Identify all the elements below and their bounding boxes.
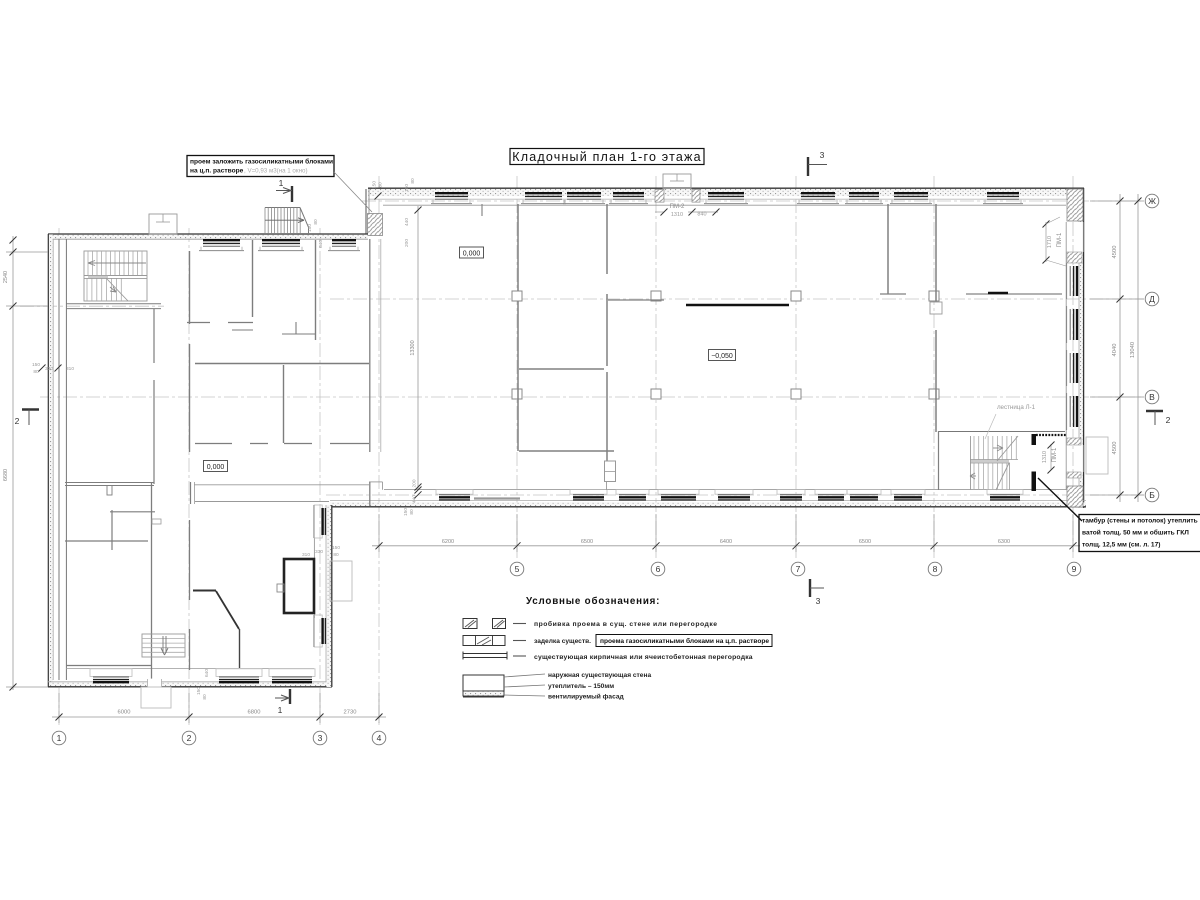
svg-text:6500: 6500 xyxy=(581,539,593,545)
svg-text:1310: 1310 xyxy=(1042,451,1048,463)
svg-text:3: 3 xyxy=(820,150,825,160)
svg-text:150: 150 xyxy=(404,184,410,192)
svg-text:80: 80 xyxy=(202,694,208,700)
svg-text:наружная существующая стена: наружная существующая стена xyxy=(548,672,651,679)
svg-text:2540: 2540 xyxy=(3,271,9,283)
svg-text:Ж: Ж xyxy=(1148,196,1156,206)
svg-text:Кладочный план 1-го этажа: Кладочный план 1-го этажа xyxy=(512,150,702,164)
svg-text:440: 440 xyxy=(404,218,410,226)
svg-text:2730: 2730 xyxy=(344,710,357,716)
svg-text:2: 2 xyxy=(1166,415,1171,425)
svg-text:0,000: 0,000 xyxy=(463,251,481,258)
svg-text:5: 5 xyxy=(515,564,520,574)
svg-text:2: 2 xyxy=(187,733,192,743)
svg-text:1: 1 xyxy=(279,178,284,188)
svg-text:4500: 4500 xyxy=(1112,442,1118,455)
svg-text:Б: Б xyxy=(1149,490,1155,500)
svg-text:6200: 6200 xyxy=(442,539,454,545)
svg-text:330: 330 xyxy=(45,366,53,372)
svg-text:тамбур (стены и потолок) утепл: тамбур (стены и потолок) утеплить xyxy=(1082,517,1198,525)
svg-text:200: 200 xyxy=(404,239,410,247)
svg-text:80: 80 xyxy=(410,178,416,184)
svg-text:4500: 4500 xyxy=(1112,246,1118,259)
svg-text:Д: Д xyxy=(1149,294,1155,304)
svg-text:6680: 6680 xyxy=(3,469,9,481)
svg-text:6800: 6800 xyxy=(248,710,261,716)
svg-text:310: 310 xyxy=(302,552,310,558)
svg-text:на ц.п. растворе: на ц.п. растворе xyxy=(190,168,244,175)
svg-text:150: 150 xyxy=(307,224,313,232)
svg-text:310: 310 xyxy=(66,366,74,372)
svg-text:6: 6 xyxy=(656,564,661,574)
svg-text:ПМ-2: ПМ-2 xyxy=(670,204,685,210)
svg-text:80: 80 xyxy=(378,182,384,188)
svg-text:150: 150 xyxy=(332,545,340,551)
svg-text:2: 2 xyxy=(15,416,20,426)
svg-text:1: 1 xyxy=(278,705,283,715)
svg-text:В: В xyxy=(1149,392,1155,402)
svg-text:1710: 1710 xyxy=(1047,236,1053,248)
svg-text:, V=0,93 м3(на 1 окно): , V=0,93 м3(на 1 окно) xyxy=(244,168,308,175)
svg-text:330: 330 xyxy=(315,549,323,555)
svg-text:8: 8 xyxy=(933,564,938,574)
svg-text:200: 200 xyxy=(412,479,418,487)
svg-text:пробивка проема в сущ. стене: пробивка проема в сущ. стене или перегор… xyxy=(534,620,718,628)
svg-text:утеплитель – 150мм: утеплитель – 150мм xyxy=(548,683,614,690)
svg-text:6500: 6500 xyxy=(859,539,871,545)
svg-text:9: 9 xyxy=(1072,564,1077,574)
svg-text:0,000: 0,000 xyxy=(207,464,225,471)
svg-text:80: 80 xyxy=(33,369,39,375)
svg-text:6300: 6300 xyxy=(998,539,1010,545)
svg-text:проема газосиликатными блоками: проема газосиликатными блоками на ц.п. р… xyxy=(600,637,769,645)
svg-text:ПМ-1: ПМ-1 xyxy=(1052,447,1058,462)
svg-text:заделка существ.: заделка существ. xyxy=(534,638,591,645)
svg-text:150: 150 xyxy=(372,181,378,189)
svg-text:1: 1 xyxy=(57,733,62,743)
svg-text:150: 150 xyxy=(32,362,40,368)
svg-text:ватой толщ. 50 мм и обшить ГКЛ: ватой толщ. 50 мм и обшить ГКЛ xyxy=(1082,529,1189,537)
svg-text:лестница Л-1: лестница Л-1 xyxy=(997,404,1036,411)
svg-text:4: 4 xyxy=(377,733,382,743)
svg-text:толщ. 12,5 мм (см. л. 17): толщ. 12,5 мм (см. л. 17) xyxy=(1082,542,1160,549)
svg-text:150: 150 xyxy=(196,687,202,695)
svg-text:ПМ-1: ПМ-1 xyxy=(1057,232,1063,247)
svg-text:7: 7 xyxy=(796,564,801,574)
svg-text:4040: 4040 xyxy=(1112,344,1118,357)
svg-text:3: 3 xyxy=(318,733,323,743)
svg-text:вентилируемый фасад: вентилируемый фасад xyxy=(548,693,624,701)
svg-text:13040: 13040 xyxy=(1130,342,1136,358)
svg-text:3: 3 xyxy=(816,596,821,606)
svg-text:6000: 6000 xyxy=(118,710,131,716)
svg-text:существующая кирпичная или яче: существующая кирпичная или ячеистобетонн… xyxy=(534,653,753,661)
svg-text:80: 80 xyxy=(333,552,339,558)
svg-text:150: 150 xyxy=(403,508,409,516)
svg-text:640: 640 xyxy=(204,669,210,677)
svg-text:проем заложить газосиликатными: проем заложить газосиликатными блоками xyxy=(190,158,333,166)
svg-text:840: 840 xyxy=(697,212,706,218)
svg-text:80: 80 xyxy=(313,219,319,225)
svg-text:Условные обозначения:: Условные обозначения: xyxy=(526,596,660,607)
svg-text:640: 640 xyxy=(318,240,324,248)
svg-text:−0,050: −0,050 xyxy=(711,353,733,360)
svg-text:13300: 13300 xyxy=(410,340,416,355)
svg-text:80: 80 xyxy=(409,509,415,515)
svg-text:1310: 1310 xyxy=(671,212,683,218)
svg-text:6400: 6400 xyxy=(720,539,732,545)
